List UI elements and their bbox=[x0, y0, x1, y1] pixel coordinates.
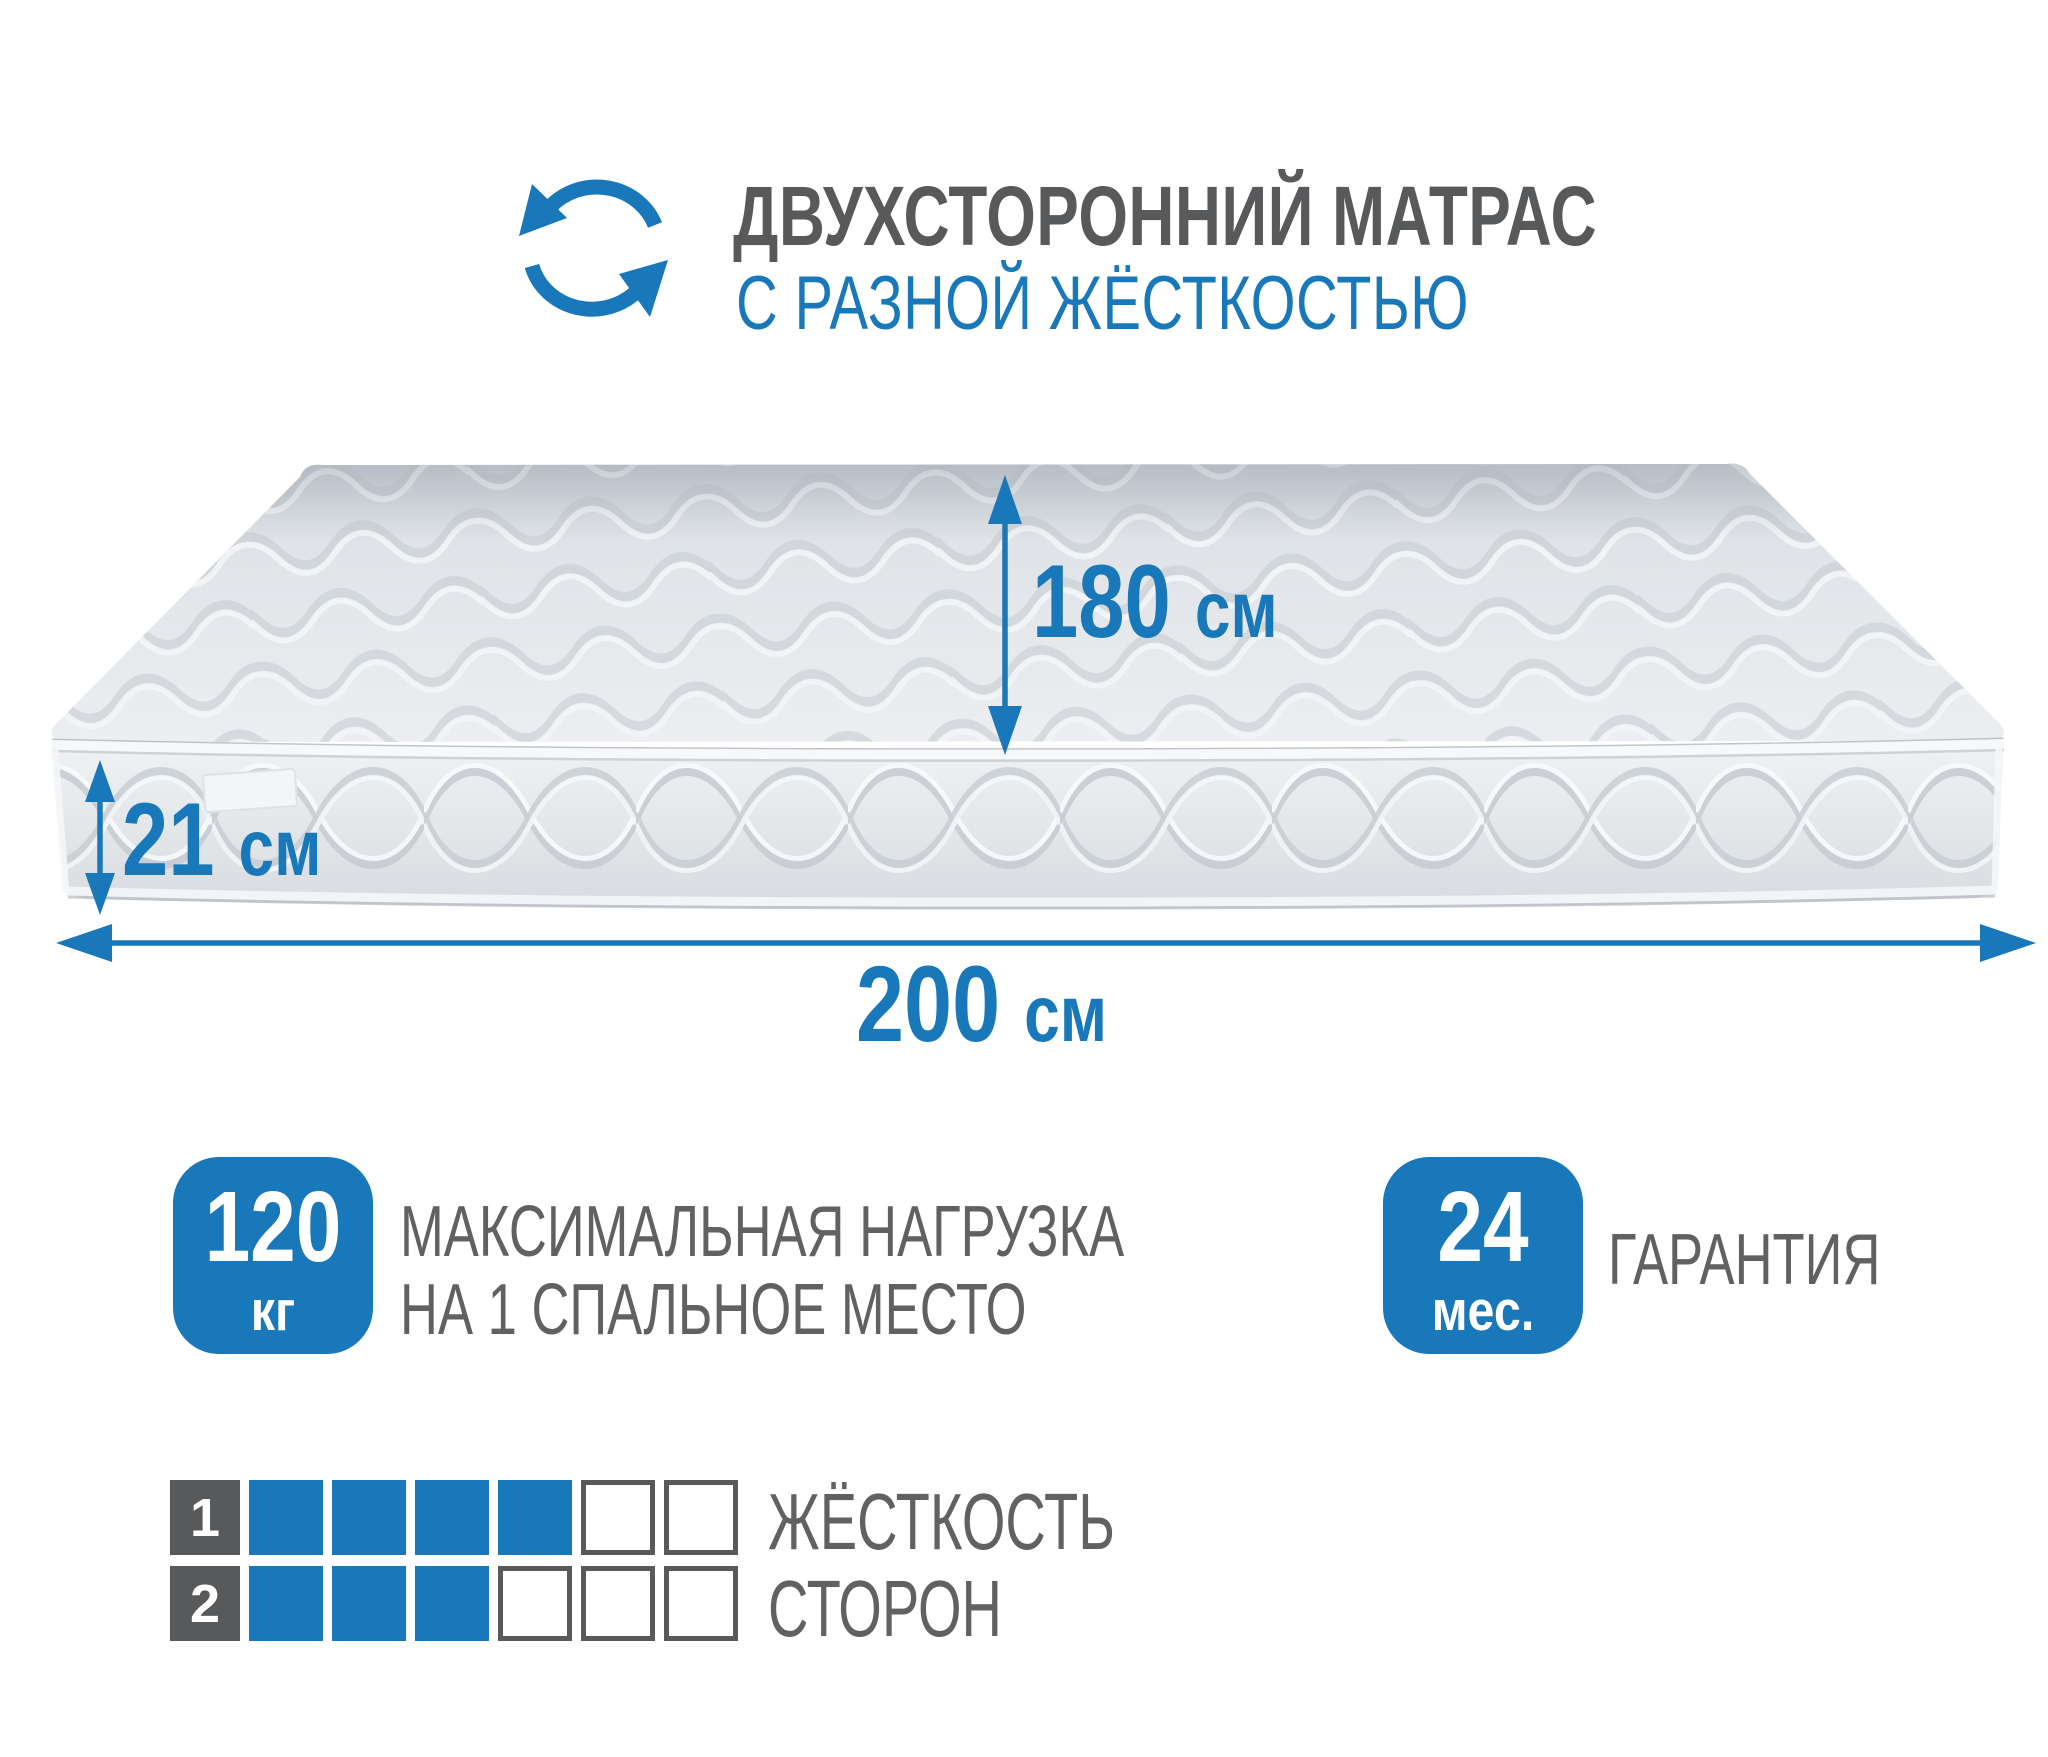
max-load-caption: МАКСИМАЛЬНАЯ НАГРУЗКА НА 1 СПАЛЬНОЕ МЕСТ… bbox=[400, 1193, 1124, 1349]
max-load-value: 120 bbox=[191, 1177, 355, 1277]
firmness-cell bbox=[664, 1566, 738, 1641]
firmness-caption: ЖЁСТКОСТЬ СТОРОН bbox=[768, 1478, 1115, 1652]
page-subtitle: С РАЗНОЙ ЖЁСТКОСТЬЮ bbox=[736, 262, 1469, 346]
length-dimension-label: 200см bbox=[856, 950, 1107, 1058]
warranty-badge: 24 мес. bbox=[1383, 1157, 1583, 1354]
width-value: 180 bbox=[1032, 544, 1171, 660]
firmness-cell bbox=[415, 1566, 489, 1641]
firmness-row-number: 1 bbox=[170, 1480, 240, 1555]
firmness-row: 2 bbox=[170, 1566, 738, 1641]
length-value: 200 bbox=[856, 943, 1000, 1064]
thickness-dimension-label: 21см bbox=[122, 788, 321, 892]
firmness-cell bbox=[332, 1566, 406, 1641]
thickness-value: 21 bbox=[122, 782, 215, 898]
firmness-caption-line1: ЖЁСТКОСТЬ bbox=[768, 1478, 1115, 1565]
firmness-cell bbox=[581, 1480, 655, 1555]
width-dimension-label: 180см bbox=[1032, 550, 1278, 654]
rotate-arrows-icon bbox=[505, 170, 680, 330]
warranty-value: 24 bbox=[1401, 1177, 1565, 1277]
thickness-unit: см bbox=[239, 803, 322, 892]
max-load-unit: кг bbox=[188, 1283, 358, 1340]
firmness-cell bbox=[664, 1480, 738, 1555]
firmness-row-number: 2 bbox=[170, 1566, 240, 1641]
firmness-cell bbox=[249, 1566, 323, 1641]
warranty-caption-text: ГАРАНТИЯ bbox=[1608, 1221, 1880, 1299]
firmness-cell bbox=[249, 1480, 323, 1555]
max-load-caption-line1: МАКСИМАЛЬНАЯ НАГРУЗКА bbox=[400, 1193, 1124, 1271]
mattress-infographic: ДВУХСТОРОННИЙ МАТРАС С РАЗНОЙ ЖЁСТКОСТЬЮ bbox=[0, 0, 2048, 1757]
warranty-caption: ГАРАНТИЯ bbox=[1608, 1221, 1880, 1299]
firmness-cell bbox=[415, 1480, 489, 1555]
length-unit: см bbox=[1024, 969, 1107, 1058]
firmness-row: 1 bbox=[170, 1480, 738, 1555]
page-title: ДВУХСТОРОННИЙ МАТРАС bbox=[733, 170, 1597, 262]
mattress-top-surface bbox=[52, 463, 2004, 742]
mattress-side-face bbox=[53, 745, 2003, 909]
firmness-cell bbox=[498, 1480, 572, 1555]
warranty-unit: мес. bbox=[1398, 1283, 1568, 1340]
firmness-caption-line2: СТОРОН bbox=[768, 1565, 1115, 1652]
max-load-caption-line2: НА 1 СПАЛЬНОЕ МЕСТО bbox=[400, 1271, 1124, 1349]
firmness-cell bbox=[581, 1566, 655, 1641]
max-load-badge: 120 кг bbox=[173, 1157, 373, 1354]
width-unit: см bbox=[1195, 565, 1278, 654]
firmness-cell bbox=[332, 1480, 406, 1555]
firmness-cell bbox=[498, 1566, 572, 1641]
